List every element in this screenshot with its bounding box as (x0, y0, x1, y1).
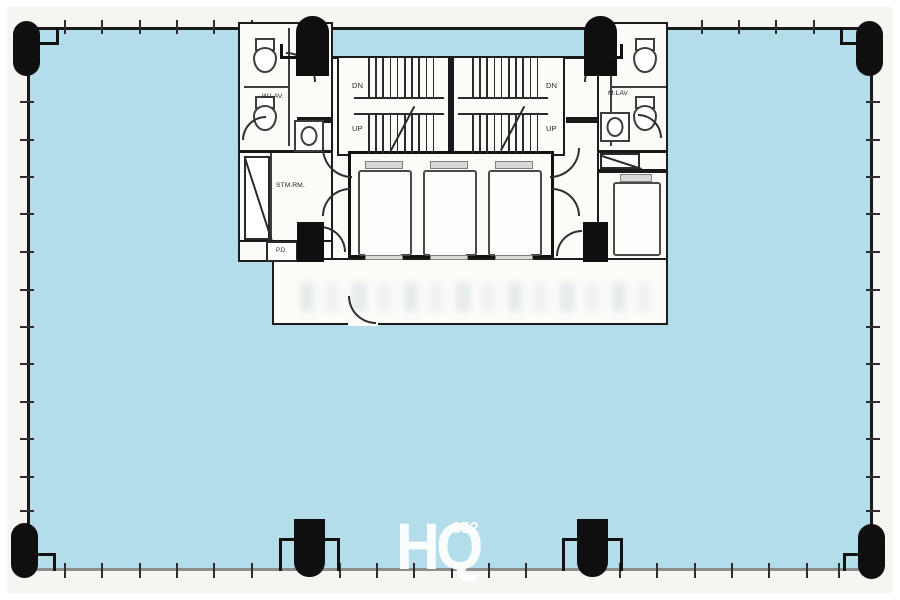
facade-tick (731, 563, 733, 578)
facade-tick (806, 563, 808, 578)
boundary-step (280, 56, 297, 59)
stair-tread (368, 113, 370, 153)
core-column (297, 222, 324, 262)
lavatory-left-label: W.LAV. (262, 92, 284, 100)
column-bottom-mid-right (577, 519, 608, 577)
stair-tread (404, 58, 406, 97)
pipe-duct-label: P.D. (276, 247, 287, 255)
sink-icon (294, 120, 324, 152)
facade-tick (866, 510, 880, 512)
facade-tick (20, 289, 34, 291)
stair-tread (530, 113, 532, 153)
column-top-mid-left (296, 16, 329, 76)
lift-door-slot (365, 255, 403, 260)
stair-landing-line (458, 97, 548, 99)
facade-tick (176, 20, 178, 34)
floor-plan: W.LAV. STM.RM. P.D. DN UP DN UP M.LAV. (0, 0, 900, 600)
facade-tick (701, 20, 703, 34)
stair-tread (411, 58, 413, 97)
stair-tread (472, 58, 474, 97)
column-top-right (856, 21, 883, 76)
toilet-icon (632, 38, 656, 72)
boundary-step (608, 538, 623, 541)
facade-tick (251, 563, 253, 578)
boundary-step (337, 538, 340, 571)
facade-tick (656, 563, 658, 578)
facade-tick (768, 563, 770, 578)
facade-tick (866, 401, 880, 403)
facade-tick (838, 563, 840, 578)
facade-tick (866, 213, 880, 215)
boundary-step (279, 538, 282, 571)
boundary-step (562, 538, 565, 571)
facade-tick (866, 101, 880, 103)
facade-tick (176, 563, 178, 578)
stair-tread (486, 58, 488, 97)
elevator-car-2 (423, 170, 477, 256)
stair-tread (426, 58, 428, 97)
cubicle-wall (610, 86, 666, 88)
facade-tick (20, 101, 34, 103)
lift-door-slot (430, 161, 468, 169)
facade-tick (376, 563, 378, 578)
stair-right-dn-label: DN (546, 82, 557, 90)
column-bottom-mid-left (294, 519, 325, 577)
boundary-step (38, 553, 55, 556)
boundary-step (842, 42, 859, 45)
wall (270, 153, 272, 241)
stair-tread (486, 113, 488, 153)
stair-tread (382, 58, 384, 97)
facade-tick (866, 476, 880, 478)
column-top-mid-right (584, 16, 617, 76)
facade-tick (738, 20, 740, 34)
stair-right-up-label: UP (546, 125, 557, 133)
stair-tread (479, 58, 481, 97)
boundary-step (843, 553, 860, 556)
elevator-car-3 (488, 170, 542, 256)
stair-tread (397, 58, 399, 97)
stair-tread (479, 113, 481, 153)
cubicle-wall (288, 28, 290, 146)
cubicle-wall (244, 86, 288, 88)
lift-door-slot (495, 161, 533, 169)
stair-tread (515, 58, 517, 97)
lift-door-slot (365, 161, 403, 169)
toilet-icon (252, 38, 276, 72)
boundary-step (562, 538, 578, 541)
service-elevator-car (613, 182, 661, 256)
boundary-step (325, 538, 340, 541)
facade-tick (488, 563, 490, 578)
stair-tread (522, 113, 524, 153)
facade-tick (64, 563, 66, 578)
stair-landing-line (354, 97, 444, 99)
facade-tick (813, 20, 815, 34)
stair-tread (368, 58, 370, 97)
boundary-step (620, 538, 623, 571)
stair-tread (375, 113, 377, 153)
column-top-left (13, 21, 40, 76)
lift-door-slot (620, 174, 652, 182)
stair-tread (426, 113, 428, 153)
stair-tread (494, 113, 496, 153)
facade-tick (139, 20, 141, 34)
stair-tread (418, 58, 420, 97)
stair-tread (382, 113, 384, 153)
wall (566, 117, 599, 123)
facade-tick (20, 401, 34, 403)
facade-tick (525, 563, 527, 578)
stair-tread (472, 113, 474, 153)
elevator-car-1 (358, 170, 412, 256)
facade-tick (866, 251, 880, 253)
core-column (583, 222, 608, 262)
watermark-superscript: 852 (452, 520, 479, 538)
facade-tick (20, 363, 34, 365)
facade-tick (866, 326, 880, 328)
facade-tick (866, 363, 880, 365)
stair-tread (501, 58, 503, 97)
lift-shaft-wall (598, 169, 666, 173)
facade-tick (20, 438, 34, 440)
stair-tread (433, 58, 435, 97)
facade-tick (20, 213, 34, 215)
column-bottom-right (858, 524, 885, 579)
facade-tick (213, 563, 215, 578)
facade-tick (866, 289, 880, 291)
facade-tick (20, 176, 34, 178)
facade-tick (64, 20, 66, 34)
boundary-step (279, 538, 295, 541)
stair-divider-wall (448, 56, 453, 156)
lift-door-slot (495, 255, 533, 260)
facade-tick (866, 139, 880, 141)
boundary-step (40, 42, 58, 45)
lavatory-right-label: M.LAV. (608, 89, 629, 97)
facade-tick (139, 563, 141, 578)
stair-tread (537, 58, 539, 97)
stair-tread (494, 58, 496, 97)
store-room-label: STM.RM. (276, 181, 305, 189)
stair-tread (530, 58, 532, 97)
stair-left-dn-label: DN (352, 82, 363, 90)
facade-tick (20, 510, 34, 512)
facade-tick (213, 20, 215, 34)
stair-tread (390, 58, 392, 97)
stair-tread (508, 58, 510, 97)
facade-tick (694, 563, 696, 578)
stair-tread (411, 113, 413, 153)
stair-tread (375, 58, 377, 97)
boundary-step (608, 56, 623, 59)
facade-tick (866, 176, 880, 178)
sink-icon (600, 112, 630, 142)
facade-tick (20, 251, 34, 253)
facade-tick (101, 563, 103, 578)
facade-tick (20, 326, 34, 328)
stair-landing-line (458, 113, 548, 115)
stair-landing-line (354, 113, 444, 115)
stair-tread (522, 58, 524, 97)
facade-tick (20, 139, 34, 141)
facade-tick (775, 20, 777, 34)
column-bottom-left (11, 523, 38, 578)
facade-tick (101, 20, 103, 34)
stair-tread (418, 113, 420, 153)
facade-tick (866, 438, 880, 440)
stair-tread (537, 113, 539, 153)
stair-left-up-label: UP (352, 125, 363, 133)
facade-tick (20, 476, 34, 478)
stair-tread (433, 113, 435, 153)
lift-door-slot (430, 255, 468, 260)
